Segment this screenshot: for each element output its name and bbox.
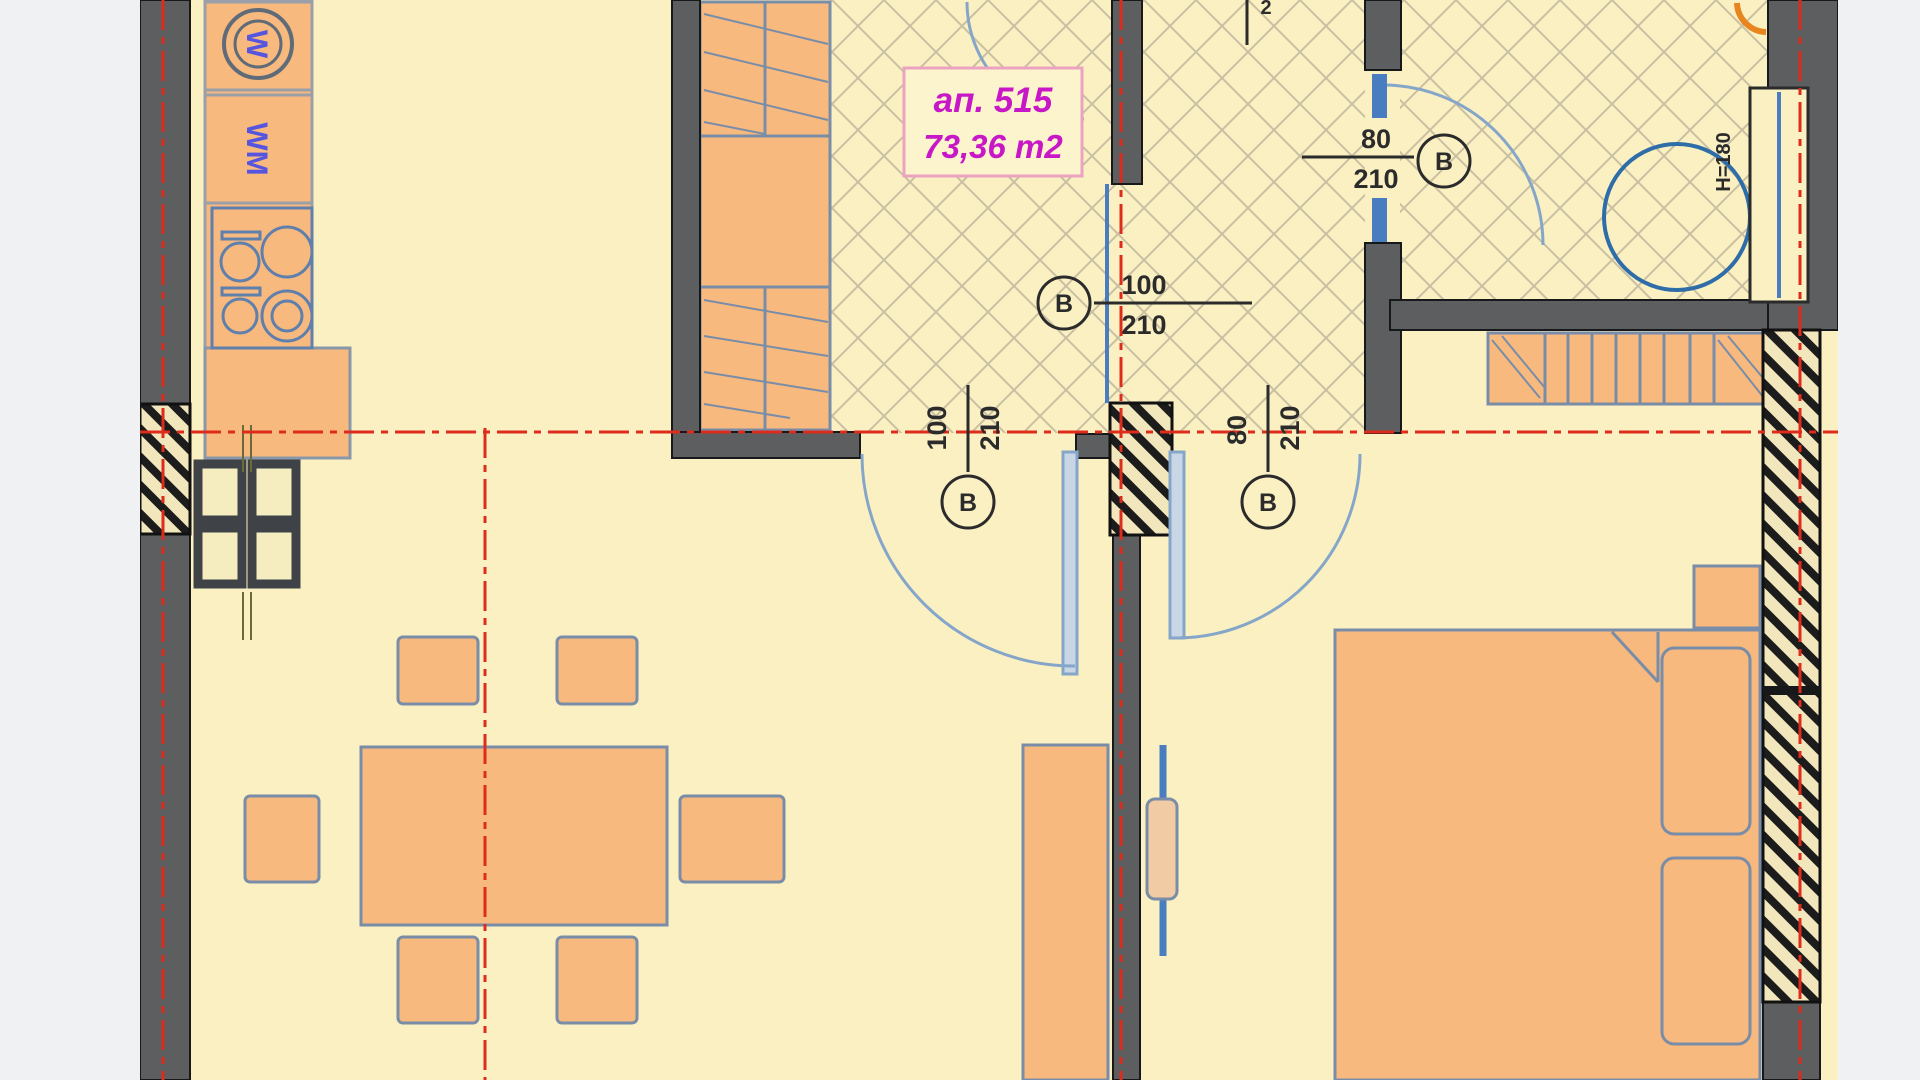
- chair: [557, 937, 637, 1023]
- wall-living-bedroom: [1113, 535, 1140, 1080]
- wall-exterior-left: [140, 0, 190, 1080]
- door-height: 210: [1275, 405, 1305, 450]
- wall-hatched-left: [140, 404, 190, 534]
- bedroom-wardrobe: [1488, 333, 1768, 404]
- pillow: [1662, 858, 1750, 1044]
- dining-table: [361, 747, 667, 925]
- floor-plan-canvas: W WM: [0, 0, 1920, 1080]
- wall-exterior-right-bottom: [1763, 1002, 1820, 1080]
- chair: [245, 796, 319, 882]
- apartment-number: ап. 515: [934, 81, 1053, 120]
- chair: [680, 796, 784, 882]
- door-height: 210: [975, 405, 1005, 450]
- chair: [398, 637, 478, 704]
- sink-basin: [198, 528, 242, 584]
- page-margin-right: [1838, 0, 1920, 1080]
- hall-wardrobe: [700, 2, 830, 430]
- wall-hall-south: [672, 432, 860, 458]
- double-bed: [1335, 566, 1760, 1080]
- partial-dimension-top: 2: [1260, 0, 1271, 19]
- sink-basin: [198, 464, 242, 520]
- door-type-letter: B: [1055, 290, 1073, 318]
- sink-basin: [252, 528, 296, 584]
- laundry-label: WM: [240, 122, 273, 175]
- wall-joint: [1763, 686, 1820, 695]
- apartment-area-label: ап. 515 73,36 m2: [904, 68, 1082, 176]
- stove: [212, 208, 312, 348]
- door-type-letter: B: [1435, 148, 1453, 176]
- chair: [398, 937, 478, 1023]
- column-hatched-center: [1110, 403, 1172, 535]
- wall-hall-west: [672, 0, 700, 432]
- hall-tiled-floor: [830, 0, 1365, 433]
- washing-machine: W: [205, 2, 312, 90]
- laundry-machine: WM: [205, 95, 312, 203]
- door-jamb: [1372, 74, 1387, 118]
- bedroom-door-leaf: [1170, 452, 1184, 638]
- window-height-note: H=180: [1713, 132, 1735, 192]
- door-height: 210: [1121, 310, 1166, 340]
- wall-hall-east: [1112, 0, 1142, 184]
- chair: [557, 637, 637, 704]
- door-type-letter: B: [959, 489, 977, 517]
- door-jamb: [1372, 198, 1387, 242]
- sink-basin: [252, 464, 296, 520]
- door-width: 80: [1361, 124, 1391, 154]
- page-margin-left: [0, 0, 140, 1080]
- floor-plan-page: W WM: [0, 0, 1920, 1080]
- wall-bath-west-bottom: [1365, 243, 1401, 433]
- wall-door-stub: [1076, 434, 1110, 458]
- tv-screen: [1147, 799, 1177, 899]
- apartment-area: 73,36 m2: [923, 128, 1063, 165]
- door-type-letter: B: [1259, 489, 1277, 517]
- living-door-leaf: [1063, 452, 1077, 674]
- wall-bath-west-top: [1365, 0, 1401, 70]
- nightstand: [1694, 566, 1760, 628]
- pillow: [1662, 648, 1750, 834]
- door-width: 80: [1222, 415, 1252, 445]
- door-height: 210: [1353, 164, 1398, 194]
- door-width: 100: [922, 405, 952, 450]
- door-width: 100: [1121, 270, 1166, 300]
- tv-cabinet: [1023, 745, 1108, 1080]
- washer-letter: W: [240, 30, 273, 59]
